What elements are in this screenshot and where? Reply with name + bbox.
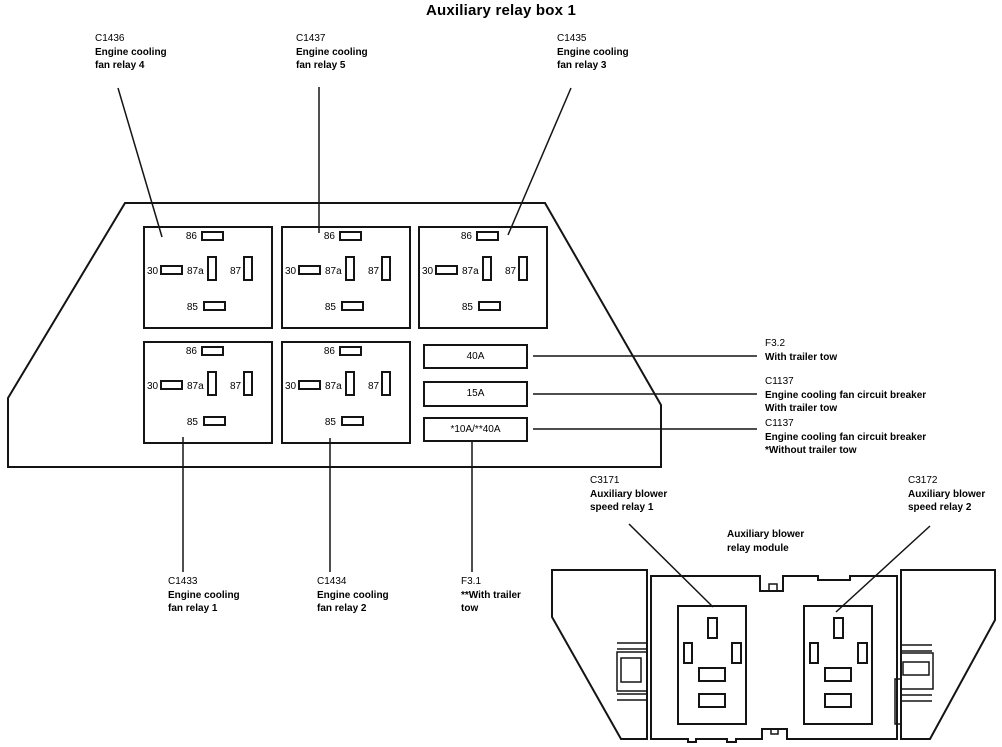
pin-label-87: 87 [368,266,379,277]
label-c3172-id: C3172 [908,474,985,488]
pin-30 [435,265,458,275]
pin-85 [341,416,364,426]
pin-86 [476,231,499,241]
pin-mid [824,667,852,682]
pin-label-86: 86 [309,346,335,357]
pin-left [809,642,819,664]
pin-label-87: 87 [230,381,241,392]
fuse-40a: 40A [423,344,528,369]
pin-87 [381,371,391,396]
pin-30 [160,380,183,390]
socket-blower-speed-relay-2 [803,605,873,725]
label-c3172-line1: Auxiliary blower [908,488,985,502]
page-title: Auxiliary relay box 1 [0,2,1002,19]
label-c1434: C1434 Engine cooling fan relay 2 [317,575,389,616]
pin-label-87a: 87a [187,266,204,277]
label-f3-2: F3.2 With trailer tow [765,337,837,364]
label-c1434-line1: Engine cooling [317,589,389,603]
pin-label-87a: 87a [325,381,342,392]
leader-c1435 [508,88,571,235]
label-c1433-line1: Engine cooling [168,589,240,603]
label-c1137-with: C1137 Engine cooling fan circuit breaker… [765,375,926,416]
pin-label-86: 86 [446,231,472,242]
label-c1137-with-line2: With trailer tow [765,402,926,416]
label-c1436-line2: fan relay 4 [95,59,167,73]
pin-label-85: 85 [319,417,336,428]
diagram-canvas: Auxiliary relay box 1 C1436 Engine cooli… [0,0,1002,747]
pin-label-85: 85 [456,302,473,313]
label-f3-1: F3.1 **With trailer tow [461,575,521,616]
right-wing-connector [901,653,933,689]
relay-socket-fan-relay-4: 86 30 87a 87 85 [143,226,273,329]
label-f3-1-line1: **With trailer [461,589,521,603]
pin-87a [207,371,217,396]
leader-c1436 [118,88,162,237]
pin-30 [160,265,183,275]
label-c1137-with-line1: Engine cooling fan circuit breaker [765,389,926,403]
pin-label-86: 86 [309,231,335,242]
pin-85 [203,301,226,311]
relay-socket-fan-relay-3: 86 30 87a 87 85 [418,226,548,329]
label-blower-module-line1: Auxiliary blower [727,528,804,542]
label-c1137-without-line2: *Without trailer tow [765,444,926,458]
pin-label-87: 87 [505,266,516,277]
pin-label-30: 30 [285,266,296,277]
pin-86 [339,346,362,356]
pin-bottom [824,693,852,708]
label-c3172-line2: speed relay 2 [908,501,985,515]
pin-right [731,642,742,664]
pin-label-30: 30 [285,381,296,392]
right-wing-connector-inner [903,662,929,675]
label-c3171: C3171 Auxiliary blower speed relay 1 [590,474,667,515]
label-c3171-line2: speed relay 1 [590,501,667,515]
label-c1137-without-line1: Engine cooling fan circuit breaker [765,431,926,445]
leader-c3171 [629,524,713,607]
label-c3171-line1: Auxiliary blower [590,488,667,502]
label-c1437-line1: Engine cooling [296,46,368,60]
pin-right [857,642,868,664]
label-c1435-line2: fan relay 3 [557,59,629,73]
pin-87 [243,256,253,281]
pin-85 [203,416,226,426]
label-c1436-line1: Engine cooling [95,46,167,60]
pin-top [833,617,844,639]
socket-blower-speed-relay-1 [677,605,747,725]
label-c1437: C1437 Engine cooling fan relay 5 [296,32,368,73]
label-c1436: C1436 Engine cooling fan relay 4 [95,32,167,73]
label-c1137-without: C1137 Engine cooling fan circuit breaker… [765,417,926,458]
label-c1435-line1: Engine cooling [557,46,629,60]
pin-label-30: 30 [422,266,433,277]
label-c1433-line2: fan relay 1 [168,602,240,616]
pin-87a [345,371,355,396]
pin-bottom [698,693,726,708]
label-c1137-without-id: C1137 [765,417,926,431]
left-wing-connector-inner [621,658,641,682]
label-c1434-line2: fan relay 2 [317,602,389,616]
pin-87 [381,256,391,281]
label-c1435-id: C1435 [557,32,629,46]
pin-86 [201,346,224,356]
relay-socket-fan-relay-2: 86 30 87a 87 85 [281,341,411,444]
label-c1433: C1433 Engine cooling fan relay 1 [168,575,240,616]
pin-87a [482,256,492,281]
label-c1437-id: C1437 [296,32,368,46]
label-c1437-line2: fan relay 5 [296,59,368,73]
module-top-tab [769,584,777,591]
pin-87 [243,371,253,396]
blower-module-right-wing [901,570,995,739]
label-f3-2-line1: With trailer tow [765,351,837,365]
label-blower-module: Auxiliary blower relay module [727,528,804,555]
label-c1436-id: C1436 [95,32,167,46]
pin-30 [298,265,321,275]
blower-module-left-wing [552,570,647,739]
label-c3171-id: C3171 [590,474,667,488]
relay-socket-fan-relay-5: 86 30 87a 87 85 [281,226,411,329]
pin-86 [339,231,362,241]
pin-mid [698,667,726,682]
label-f3-1-id: F3.1 [461,575,521,589]
pin-label-86: 86 [171,231,197,242]
label-c1433-id: C1433 [168,575,240,589]
module-bottom-tab [771,729,778,734]
label-c1434-id: C1434 [317,575,389,589]
fuse-15a: 15A [423,381,528,407]
pin-85 [341,301,364,311]
pin-87a [207,256,217,281]
pin-label-86: 86 [171,346,197,357]
label-f3-2-id: F3.2 [765,337,837,351]
pin-label-30: 30 [147,266,158,277]
pin-label-85: 85 [181,302,198,313]
label-c3172: C3172 Auxiliary blower speed relay 2 [908,474,985,515]
fuse-10a-40a: *10A/**40A [423,417,528,442]
label-c1435: C1435 Engine cooling fan relay 3 [557,32,629,73]
pin-top [707,617,718,639]
pin-label-87a: 87a [325,266,342,277]
pin-label-85: 85 [319,302,336,313]
pin-label-87a: 87a [462,266,479,277]
pin-left [683,642,693,664]
pin-label-85: 85 [181,417,198,428]
pin-30 [298,380,321,390]
label-c1137-with-id: C1137 [765,375,926,389]
label-blower-module-line2: relay module [727,542,804,556]
pin-label-30: 30 [147,381,158,392]
pin-86 [201,231,224,241]
pin-85 [478,301,501,311]
pin-87a [345,256,355,281]
relay-socket-fan-relay-1: 86 30 87a 87 85 [143,341,273,444]
pin-label-87a: 87a [187,381,204,392]
pin-label-87: 87 [368,381,379,392]
label-f3-1-line2: tow [461,602,521,616]
pin-label-87: 87 [230,266,241,277]
pin-87 [518,256,528,281]
